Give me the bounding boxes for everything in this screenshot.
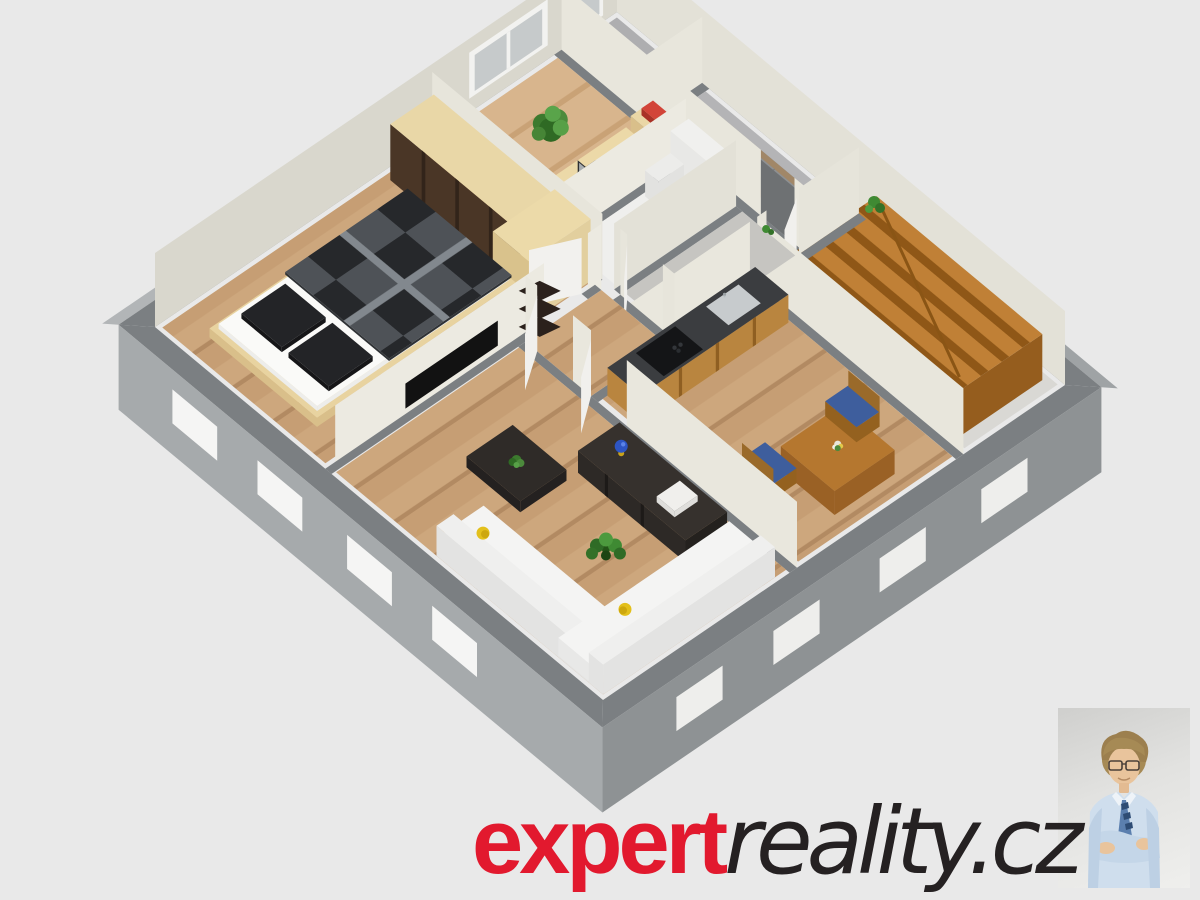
cabinet-seam-2 — [716, 342, 719, 372]
shelf-plant-2 — [865, 205, 873, 213]
wardrobe-seam-3 — [489, 206, 493, 265]
wall-plant-1 — [768, 229, 774, 235]
palm-plant-5 — [614, 548, 626, 560]
palm-plant-3 — [599, 533, 613, 547]
wardrobe-seam-2 — [455, 178, 459, 237]
office-plant-6 — [545, 106, 561, 122]
brand-logo-expert: expert — [472, 791, 724, 893]
office-plant-4 — [553, 120, 569, 136]
office-plant-5 — [532, 127, 546, 141]
palm-plant-6 — [601, 551, 611, 561]
floorplan-render-page: expertreality.cz — [0, 0, 1200, 900]
shelf-plant-1 — [875, 203, 885, 213]
wardrobe-seam-1 — [422, 150, 426, 209]
burners-1 — [678, 343, 682, 347]
faucet-1 — [724, 295, 726, 297]
burners-0 — [672, 346, 676, 350]
agent-portrait-drawing — [1088, 731, 1160, 888]
globe-decor-1 — [615, 440, 628, 453]
coffee-table-plant-3 — [513, 462, 519, 468]
office-window-mullion — [507, 31, 511, 70]
brand-logo-reality: reality — [724, 788, 967, 895]
burners-2 — [676, 349, 680, 353]
brand-logo: expertreality.cz — [472, 796, 1078, 888]
sideboard-seam-1 — [605, 473, 608, 498]
brand-logo-tld: .cz — [967, 788, 1077, 895]
globe-decor-2 — [621, 442, 625, 446]
palm-plant-4 — [586, 548, 598, 560]
sofa-pillow-1-1 — [481, 530, 489, 538]
sideboard-seam-2 — [641, 503, 644, 528]
cabinet-seam-1 — [753, 317, 756, 347]
floorplan-3d-view — [0, 0, 1200, 900]
table-flowers-3 — [835, 445, 841, 451]
cabinet-seam-3 — [679, 367, 682, 397]
sofa-pillow-2-1 — [619, 606, 627, 614]
